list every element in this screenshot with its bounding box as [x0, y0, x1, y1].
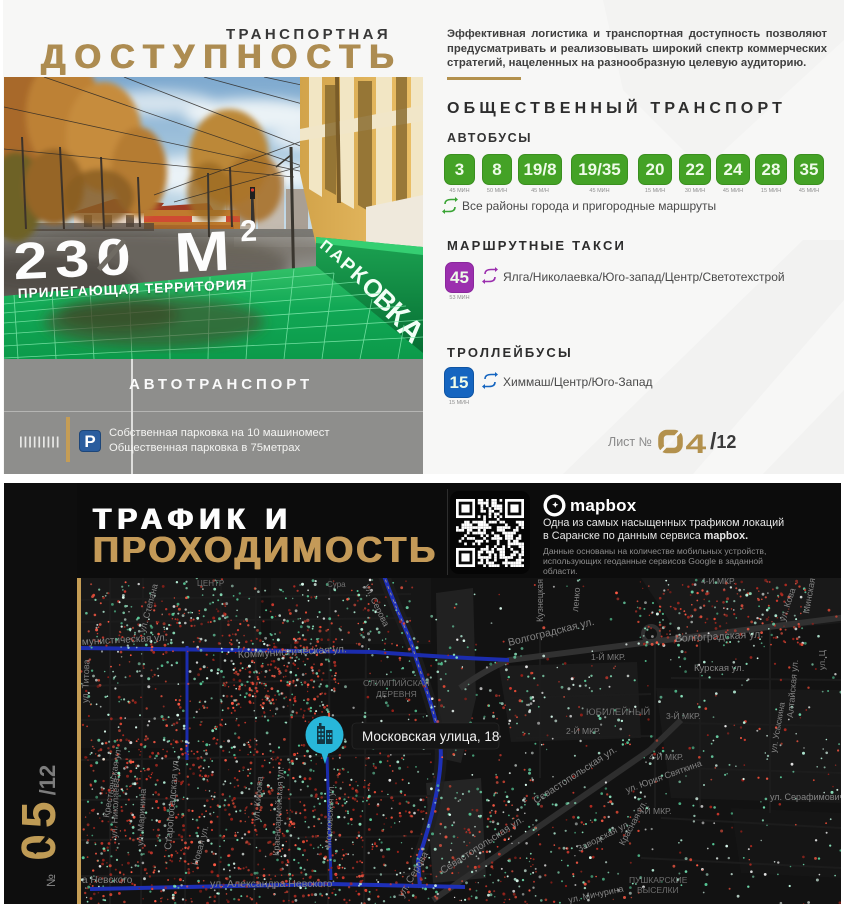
svg-text:ул. Титова: ул. Титова — [81, 659, 92, 703]
svg-text:1-Й МКР.: 1-Й МКР. — [591, 651, 626, 662]
svg-text:ЮБИЛЕЙНЫЙ: ЮБИЛЕЙНЫЙ — [586, 706, 650, 718]
svg-text:ЦЕНТР: ЦЕНТР — [197, 579, 224, 588]
svg-text:Московская улица, 18: Московская улица, 18 — [362, 729, 499, 744]
svg-text:ВЫСЕЛКИ: ВЫСЕЛКИ — [637, 885, 679, 895]
svg-text:ленко: ленко — [570, 587, 582, 612]
svg-text:3-Й МКР.: 3-Й МКР. — [666, 710, 701, 721]
svg-text:М: М — [173, 220, 231, 285]
svg-text:2: 2 — [240, 215, 258, 249]
svg-text:4-Й МКР.: 4-Й МКР. — [701, 578, 736, 586]
svg-text:ул. Серафимовича: ул. Серафимовича — [770, 792, 841, 802]
svg-text:Сура: Сура — [327, 580, 346, 589]
svg-text:Кузнецкая ул: Кузнецкая ул — [535, 578, 545, 622]
svg-text:ул. Николаева: ул. Николаева — [109, 778, 121, 838]
svg-text:а Невского: а Невского — [82, 875, 133, 886]
svg-text:ОЛИМПИЙСКАЯ: ОЛИМПИЙСКАЯ — [363, 677, 430, 688]
svg-text:2-Й МКР.: 2-Й МКР. — [566, 725, 601, 736]
svg-text:4: 4 — [686, 429, 707, 456]
svg-text:4-Й МКР.: 4-Й МКР. — [649, 751, 684, 762]
svg-text:Курская ул.: Курская ул. — [694, 663, 744, 674]
svg-text:ДЕРЕВНЯ: ДЕРЕВНЯ — [376, 689, 417, 699]
svg-text:ул. Ц: ул. Ц — [817, 649, 827, 670]
svg-text:ПУШКАРСКИЕ: ПУШКАРСКИЕ — [629, 875, 688, 885]
svg-text:ул. Александра Невского: ул. Александра Невского — [210, 878, 333, 890]
